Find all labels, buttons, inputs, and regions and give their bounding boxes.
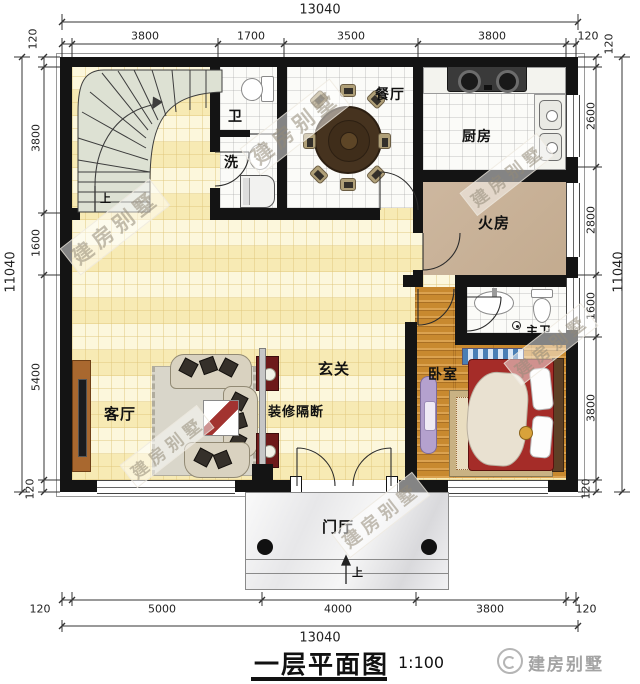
- kitchen-stove: [447, 64, 527, 92]
- wall-top: [60, 57, 578, 67]
- dim-bottom-seg1: 5000: [148, 603, 176, 616]
- floor-plan-canvas: 13040 120 3800 1700 3500 3800 120 120 11…: [0, 0, 640, 684]
- dim-right-seg4: 3800: [585, 394, 598, 422]
- shower-symbol: [512, 321, 521, 330]
- plan-title: 一层平面图: [254, 645, 389, 681]
- washing-machine: [240, 175, 275, 208]
- dim-left-edge-bottom: 120: [24, 479, 37, 500]
- plan-scale: 1:100: [398, 653, 444, 672]
- wall-bath-divider: [220, 130, 250, 137]
- dim-bottom-seg3: 3800: [476, 603, 504, 616]
- dim-bottom-edge-left: 120: [30, 603, 51, 616]
- dim-bottom-seg2: 4000: [324, 603, 352, 616]
- window-living-bottom: [97, 480, 235, 494]
- dim-top-edge-left: 120: [27, 29, 40, 50]
- wall-fire-left-a: [413, 182, 423, 233]
- label-partition: 装修隔断: [268, 401, 324, 420]
- dim-right-seg1: 2600: [585, 102, 598, 130]
- dining-chair: [340, 178, 356, 191]
- title-underline: [251, 677, 387, 681]
- dim-top-seg4: 3800: [478, 30, 506, 43]
- wall-bathstrip-left-a: [210, 67, 220, 152]
- brand-logo-icon: [497, 648, 523, 674]
- wall-masterbath-left: [455, 287, 467, 333]
- toilet-bowl: [241, 78, 263, 101]
- dim-top-edge-right: 120: [578, 30, 599, 43]
- dim-top-seg2: 1700: [237, 30, 265, 43]
- bed: [468, 359, 554, 471]
- tv-screen: [78, 379, 87, 457]
- label-living: 客厅: [104, 403, 136, 424]
- label-hall: 玄关: [318, 358, 350, 379]
- wall-fire-bottom-b: [455, 275, 566, 287]
- master-bath-sink: [474, 291, 514, 315]
- dim-left-seg3: 5400: [30, 363, 43, 391]
- porch-column: [257, 539, 273, 555]
- porch-column: [421, 539, 437, 555]
- label-bath: 卫: [228, 106, 243, 126]
- dim-left-seg2: 1600: [30, 229, 43, 257]
- dim-top-total: 13040: [299, 3, 340, 18]
- tv-cabinet: [72, 360, 91, 472]
- dim-right-edge-bottom: 120: [580, 479, 593, 500]
- dining-chair: [378, 133, 391, 149]
- window-kitchen-right: [566, 95, 580, 157]
- dim-top-seg1: 3800: [131, 30, 159, 43]
- porch-step-line: [246, 559, 448, 560]
- dim-bottom-total: 13040: [299, 631, 340, 646]
- label-bedroom: 卧室: [428, 364, 458, 384]
- label-fire-room: 火房: [478, 212, 510, 233]
- porch-step-line: [246, 573, 448, 574]
- dim-right-total: 11040: [612, 251, 627, 292]
- wall-kitchen-left: [413, 67, 423, 182]
- bed-pillow: [529, 415, 554, 459]
- dim-bottom-edge-right: 120: [576, 603, 597, 616]
- dim-left-total: 11040: [4, 251, 19, 292]
- brand-logo-text: 建房别墅: [528, 650, 604, 675]
- partition-base-pier: [252, 464, 273, 480]
- entry-opening: [291, 480, 399, 492]
- window-fire-right: [566, 183, 580, 257]
- wall-bedroom-left: [405, 322, 417, 480]
- bedroom-chaise: [420, 376, 437, 454]
- label-wash: 洗: [224, 152, 239, 172]
- wall-left: [60, 57, 72, 492]
- kitchen-sink-upper: [539, 100, 562, 130]
- wall-left-pier: [72, 208, 80, 220]
- wall-dining-bottom: [210, 208, 380, 220]
- label-porch-up: 上: [352, 564, 364, 580]
- dim-right-edge-top: 120: [603, 34, 616, 55]
- wall-fire-bottom-a: [403, 275, 420, 287]
- label-stair-up: 上: [100, 190, 112, 206]
- dim-top-seg3: 3500: [337, 30, 365, 43]
- label-kitchen: 厨房: [462, 126, 492, 146]
- decor-partition: [259, 348, 266, 466]
- dim-left-seg1: 3800: [30, 124, 43, 152]
- master-toilet-tank: [531, 289, 553, 298]
- window-bedroom-bottom: [448, 480, 548, 494]
- label-dining: 餐厅: [375, 84, 405, 104]
- dim-right-seg2: 2800: [585, 206, 598, 234]
